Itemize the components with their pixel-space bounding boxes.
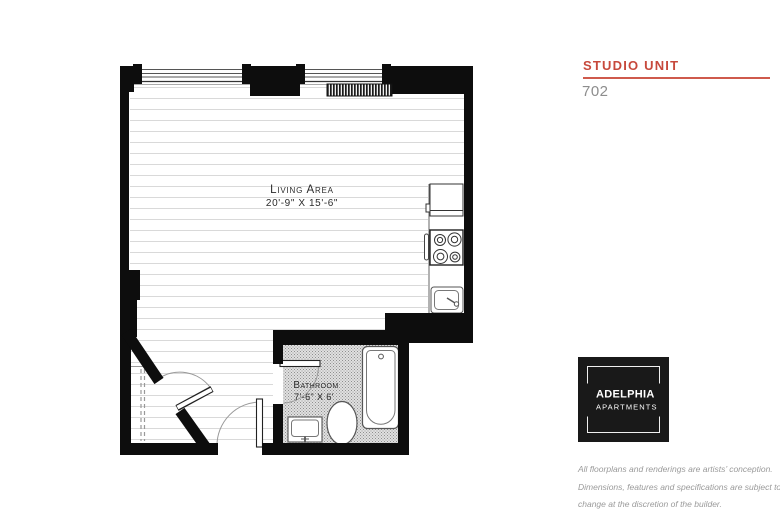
title-underline [583,77,770,79]
stove [425,230,464,265]
disclaimer-line: All floorplans and renderings are artist… [578,461,778,479]
radiator [327,84,392,96]
refrigerator [426,184,463,216]
disclaimer-line: Dimensions, features and specifications … [578,479,778,497]
living-area-dimensions: 20'-9" X 15'-6" [266,198,338,209]
toilet [327,402,357,445]
logo-text: ADELPHIA APARTMENTS [585,383,660,416]
logo-subname: APARTMENTS [596,402,658,411]
logo-name: ADELPHIA [596,388,658,400]
bathroom-label: Bathroom [293,380,338,391]
disclaimer: All floorplans and renderings are artist… [578,461,778,514]
floorplan-drawing: Living Area 20'-9" X 15'-6" Bathroom 7'-… [0,0,500,517]
disclaimer-line: change at the discretion of the builder. [578,496,778,514]
window-icon [296,64,391,85]
floorplan-sheet: Living Area 20'-9" X 15'-6" Bathroom 7'-… [0,0,780,517]
unit-number: 702 [582,83,609,100]
kitchen-sink [431,287,463,313]
bathtub [363,347,399,429]
bathroom-dimensions: 7'-6" X 6' [294,392,334,402]
living-area-label: Living Area [270,184,334,196]
bathroom-sink [288,417,322,442]
adelphia-logo: ADELPHIA APARTMENTS [578,357,669,442]
page-title: STUDIO UNIT [583,58,679,73]
window-icon [133,64,251,85]
